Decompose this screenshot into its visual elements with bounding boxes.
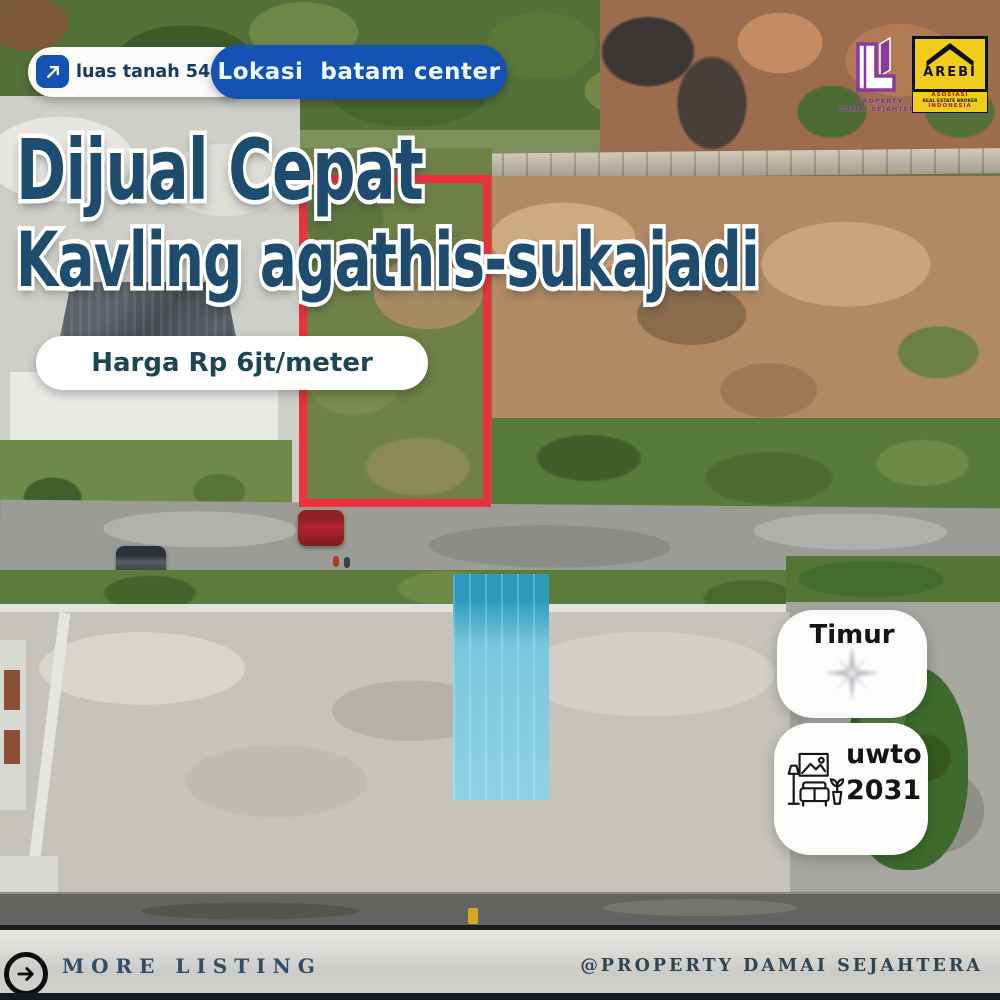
location-badge-label: Lokasi batam center (218, 59, 501, 85)
arebi-logo-sub: ASOSIASI REAL ESTATE BROKER INDONESIA (912, 92, 988, 113)
arrow-right-circle-icon (4, 952, 48, 996)
headline-line1-text: Dijual Cepat (16, 128, 423, 212)
uwto-line1: uwto (846, 737, 922, 773)
headline-line1: Dijual Cepat Dijual Cepat (16, 128, 423, 212)
lower-road (0, 892, 1000, 928)
uwto-text: uwto 2031 (846, 737, 922, 809)
headline-line2: Kavling agathis-sukajadi Kavling agathis… (16, 222, 759, 298)
arebi-logo-box: AREBI (912, 36, 988, 92)
grass-strip (486, 418, 1000, 518)
property-logo (850, 36, 904, 100)
price-badge-label: Harga Rp 6jt/meter (91, 348, 373, 378)
footer-bottom-band (0, 993, 1000, 1000)
arebi-logo-name: AREBI (923, 65, 977, 80)
property-logo-icon (850, 36, 904, 96)
window (4, 670, 20, 710)
arrow-chip (36, 55, 69, 88)
blue-roof-building (453, 574, 549, 800)
yellow-object (468, 908, 478, 924)
arebi-logo: AREBI ASOSIASI REAL ESTATE BROKER INDONE… (912, 36, 988, 113)
building-fragment (0, 856, 58, 892)
hedge (786, 556, 1000, 602)
window (4, 730, 20, 764)
roof-chevron-icon (921, 39, 979, 67)
headline-line2-text: Kavling agathis-sukajadi (16, 222, 759, 298)
pedestrian (344, 557, 350, 568)
row-houses (0, 612, 790, 894)
uwto-card: uwto 2031 (774, 723, 928, 855)
direction-card: Timur (777, 610, 927, 718)
property-logo-caption-line1: PROPERTY (857, 97, 903, 105)
more-listing-label: MORE LISTING (62, 954, 322, 978)
pedestrian (333, 556, 339, 567)
red-car (298, 510, 344, 546)
property-logo-caption-line2: DAMAI SEJAHTERA (839, 105, 922, 113)
brand-handle: @PROPERTY DAMAI SEJAHTERA (580, 956, 983, 976)
footer-bar: MORE LISTING @PROPERTY DAMAI SEJAHTERA (0, 925, 1000, 1000)
interior-icon (786, 751, 844, 813)
location-badge: Lokasi batam center (211, 45, 507, 99)
listing-poster: luas tanah 540(18x30) Lokasi batam cente… (0, 0, 1000, 1000)
uwto-line2: 2031 (846, 773, 922, 809)
small-building (0, 640, 26, 810)
arrow-right-icon (15, 963, 37, 985)
price-badge: Harga Rp 6jt/meter (36, 336, 428, 390)
arebi-sub-line3: INDONESIA (913, 104, 987, 110)
arrow-up-right-icon (42, 61, 64, 83)
compass-icon (821, 642, 883, 704)
